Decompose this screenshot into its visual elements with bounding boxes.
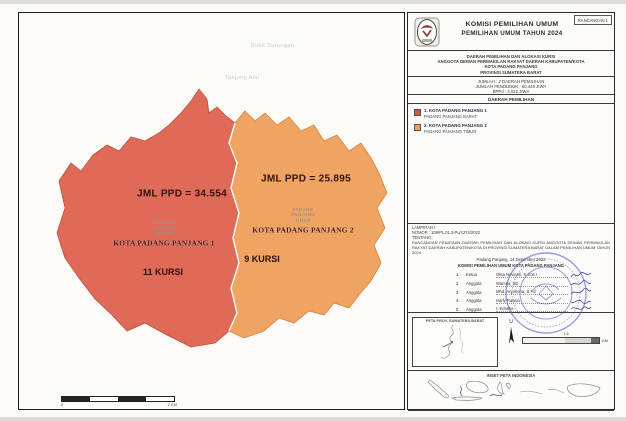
- member-role: Anggota: [466, 307, 496, 312]
- scalebar-bar: [522, 337, 600, 344]
- member-no: 4.: [456, 298, 466, 303]
- scalebar-row: KM: [522, 337, 610, 344]
- panel-subtitle: DAERAH PEMILIHAN DAN ALOKASI KURSI ANGGO…: [408, 51, 614, 77]
- signing-place-date: Padang Panjang, 14 Desember 2022: [412, 257, 610, 262]
- event-title: PEMILIHAN UMUM TAHUN 2024: [442, 30, 582, 37]
- scalebar-segment: [591, 338, 599, 343]
- signature-scribble: [570, 297, 592, 305]
- indonesia-inset-map: [416, 378, 606, 404]
- region2-name: KOTA PADANG PANJANG 2: [252, 226, 354, 235]
- section-daerah-pemilihan: DAERAH PEMILIHAN: [408, 95, 614, 104]
- region1-kec-line: BARAT: [153, 231, 177, 236]
- scalebar-segment: [90, 397, 118, 401]
- dapil2-name: 2. KOTA PADANG PANJANG 2: [424, 123, 487, 128]
- region1-name: KOTA PADANG PANJANG 1: [113, 239, 215, 248]
- region2-kec-line: TIMUR: [291, 218, 315, 223]
- dapil2-color-swatch: [414, 124, 421, 131]
- member-name: Harly Rawan: [496, 298, 568, 304]
- scalebar-segment: [118, 397, 146, 401]
- scale-unit: KM: [602, 338, 608, 343]
- dapil1-kecamatan: PADANG PANJANG BARAT: [424, 114, 487, 119]
- dapil2-text: 2. KOTA PADANG PANJANG 2 PADANG PANJANG …: [424, 123, 487, 134]
- commissioner-list: 1. Ketua Okta Novianti, S.Sos.I 2. Anggo…: [456, 271, 610, 314]
- kpu-logo-icon: [414, 17, 440, 47]
- subtitle-line: PROVINSI SUMATERA BARAT: [408, 70, 614, 75]
- scanned-election-map-page: Bukit Surungan Tanjung Alai JML PPD = 34…: [0, 0, 626, 421]
- panel-header: KOMISI PEMILIHAN UMUM PEMILIHAN UMUM TAH…: [408, 13, 614, 51]
- region2-kursi: 9 KURSI: [244, 254, 280, 264]
- lampiran-body: RANCANGAN PENATAAN DAERAH PEMILIHAN DAN …: [412, 241, 610, 255]
- scalebar-zero: 0: [61, 402, 63, 407]
- commissioner-row: 3. Anggota Mhd. Aryahona, S.Pd: [456, 288, 610, 297]
- stat-line: BPPd : 3.022 JIWA: [408, 89, 614, 94]
- region-padang-panjang-2-shape: [229, 111, 387, 338]
- member-role: Anggota: [466, 298, 496, 303]
- member-no: 2.: [456, 281, 466, 286]
- panel-title-block: KOMISI PEMILIHAN UMUM PEMILIHAN UMUM TAH…: [442, 21, 582, 37]
- signature-scribble: [570, 288, 592, 296]
- info-panel: KOMISI PEMILIHAN UMUM PEMILIHAN UMUM TAH…: [407, 12, 615, 410]
- member-no: 1.: [456, 272, 466, 277]
- map-scalebar: 0 2 KM: [61, 396, 179, 406]
- member-name: Mhd. Aryahona, S.Pd: [496, 289, 568, 295]
- dapil1-name: 1. KOTA PADANG PANJANG 1: [424, 108, 487, 113]
- member-name: I. Ednelia: [496, 306, 568, 312]
- map-scalebar-labels: 0 2 KM: [61, 402, 177, 407]
- region-padang-panjang-1-shape: [57, 89, 239, 347]
- scan-edge-top: [0, 0, 626, 4]
- member-no: 3.: [456, 290, 466, 295]
- scalebar-max: 2 KM: [168, 402, 177, 407]
- north-arrow-icon: [505, 325, 517, 345]
- region1-kecamatan-label: PADANG PANJANG BARAT: [153, 220, 177, 236]
- scalebar-segment: [146, 397, 174, 401]
- insets-row: PETA PROV. SUMATERA BARAT U 1.6: [408, 313, 614, 371]
- dapil-legend-item: 2. KOTA PADANG PANJANG 2 PADANG PANJANG …: [414, 123, 614, 134]
- scalebar-segment: [565, 338, 590, 343]
- north-arrow: U: [504, 319, 518, 349]
- draft-tag: RANCANGAN 1: [574, 15, 612, 25]
- sumbar-inset-map: [413, 323, 495, 361]
- member-no: 5.: [456, 307, 466, 312]
- signing-org: KOMISI PEMILIHAN UMUM KOTA PADANG PANJAN…: [412, 263, 610, 268]
- signature-scribble: [570, 271, 592, 279]
- member-role: Ketua: [466, 272, 496, 277]
- dapil-legend-item: 1. KOTA PADANG PANJANG 1 PADANG PANJANG …: [414, 108, 614, 119]
- dapil-legend: 1. KOTA PADANG PANJANG 1 PADANG PANJANG …: [408, 104, 614, 224]
- commissioner-row: 2. Anggota Warnita, SE: [456, 279, 610, 288]
- sumbar-inset-box: PETA PROV. SUMATERA BARAT: [412, 317, 498, 367]
- scan-edge-bottom: [0, 417, 626, 421]
- lampiran-section: LAMPIRAN I : NOMOR : 109/PL.01.3-Pu/1374…: [408, 224, 614, 313]
- district-map: [19, 13, 401, 406]
- scalebar-segment: [62, 397, 90, 401]
- commissioner-row: 4. Anggota Harly Rawan: [456, 296, 610, 305]
- region1-jml-ppd: JML PPD = 34.554: [137, 189, 227, 200]
- member-role: Anggota: [466, 290, 496, 295]
- neighbor-label: Tanjung Alai: [225, 75, 259, 81]
- member-name: Warnita, SE: [496, 281, 568, 287]
- indonesia-inset-row: INSET PETA INDONESIA: [408, 373, 614, 411]
- dapil1-text: 1. KOTA PADANG PANJANG 1 PADANG PANJANG …: [424, 108, 487, 119]
- scale-value: 1.6: [522, 331, 610, 336]
- panel-stats: JUMLAH : 2 DAERAH PEMILIHAN JUMLAH PENDU…: [408, 77, 614, 95]
- map-frame: Bukit Surungan Tanjung Alai JML PPD = 34…: [18, 12, 405, 410]
- region2-kecamatan-label: PADANG PANJANG TIMUR: [291, 207, 315, 223]
- dapil1-color-swatch: [414, 109, 421, 116]
- region1-kursi: 11 KURSI: [143, 267, 183, 277]
- member-role: Anggota: [466, 281, 496, 286]
- scalebar-segment: [523, 338, 565, 343]
- region2-jml-ppd: JML PPD = 25.895: [261, 174, 351, 185]
- panel-scalebar: 1.6 KM: [522, 331, 610, 344]
- dapil2-kecamatan: PADANG PANJANG TIMUR: [424, 129, 487, 134]
- neighbor-label: Bukit Surungan: [251, 43, 294, 49]
- signature-scribble: [570, 280, 592, 288]
- org-title: KOMISI PEMILIHAN UMUM: [442, 21, 582, 28]
- member-name: Okta Novianti, S.Sos.I: [496, 272, 568, 278]
- commissioner-row: 1. Ketua Okta Novianti, S.Sos.I: [456, 271, 610, 280]
